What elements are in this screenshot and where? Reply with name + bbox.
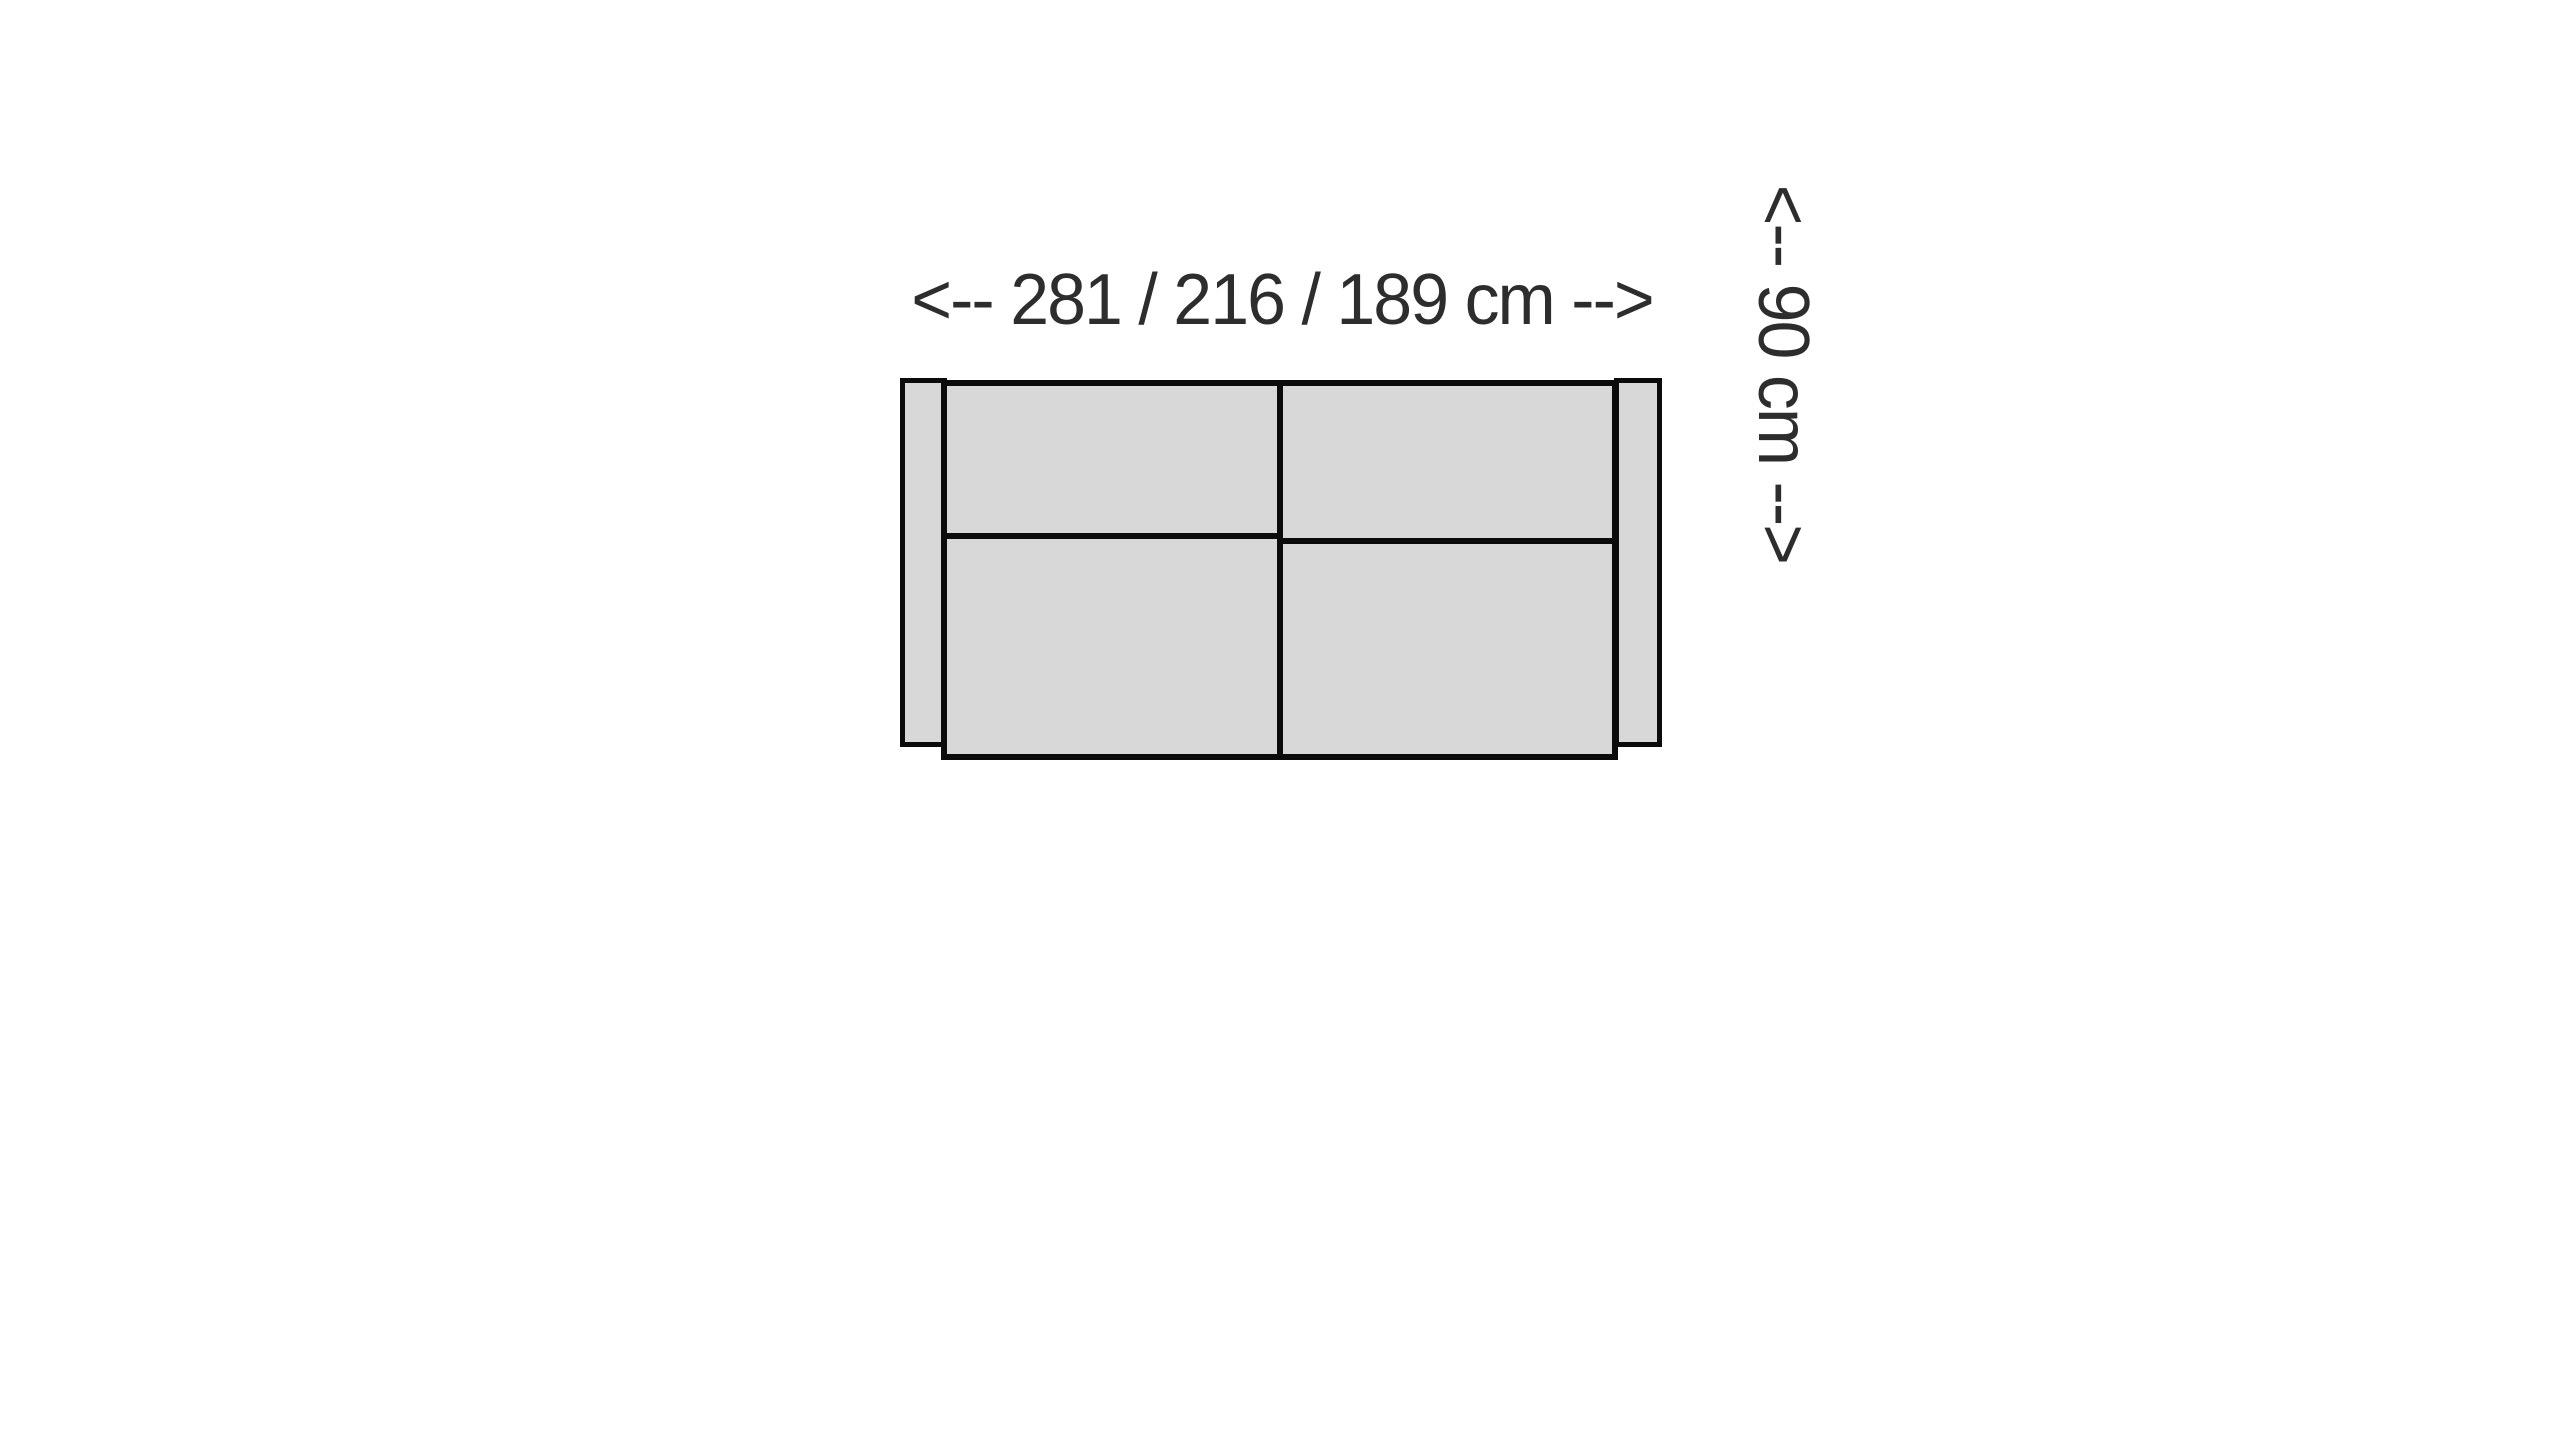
diagram-canvas: <-- 281 / 216 / 189 cm --> <-- 90 cm --> (0, 0, 2560, 1440)
depth-dimension-text: <-- 90 cm --> (1742, 185, 1824, 563)
sofa-seat-divider-right (1283, 538, 1613, 544)
sofa-seat-divider-left (946, 533, 1277, 539)
sofa-center-divider (1277, 380, 1283, 760)
sofa-armrest-right (1614, 378, 1662, 747)
width-dimension-label: <-- 281 / 216 / 189 cm --> (894, 256, 1670, 344)
sofa-armrest-left (900, 378, 947, 747)
